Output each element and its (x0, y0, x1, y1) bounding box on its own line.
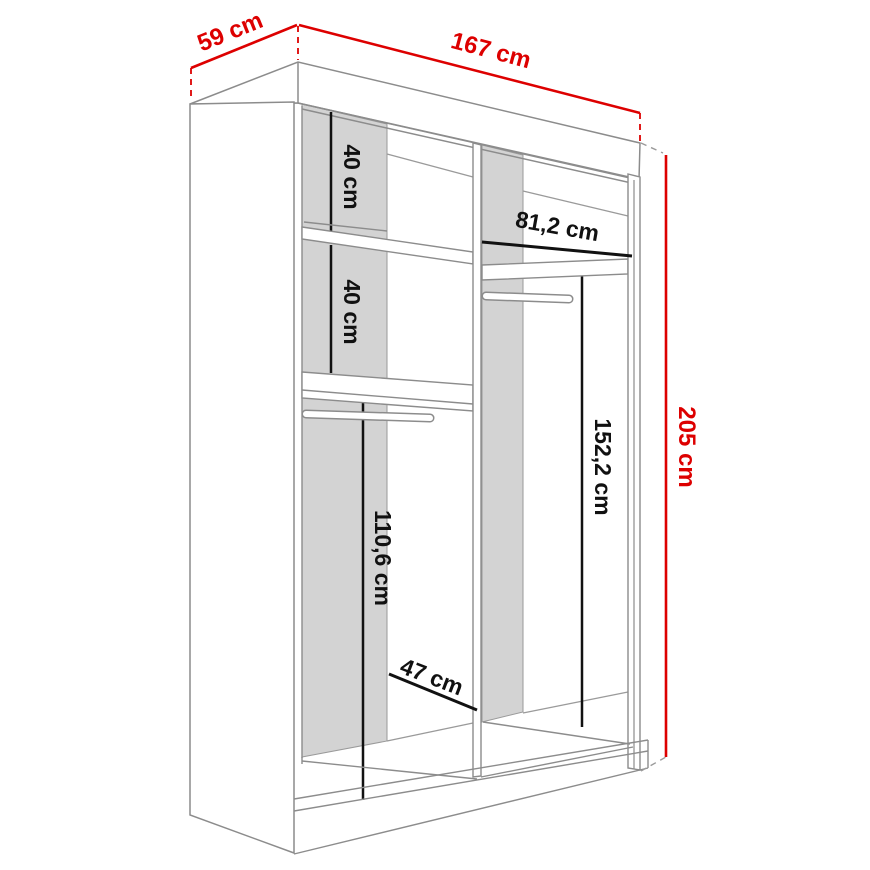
middle-divider (473, 143, 481, 777)
wardrobe-dimension-diagram: 59 cm 167 cm 205 cm 40 cm 40 cm 81,2 cm … (0, 0, 870, 870)
floor-back-line-left (387, 723, 473, 741)
wardrobe-drawing: 59 cm 167 cm 205 cm 40 cm 40 cm 81,2 cm … (0, 0, 870, 870)
right-hanging-height-label: 152,2 cm (590, 418, 616, 515)
left-hanging-rod (306, 414, 430, 418)
right-shelf-width-label: 81,2 cm (514, 206, 602, 246)
floor-back-line-right (523, 692, 628, 713)
left-bottom-width-label: 47 cm (397, 653, 467, 701)
floor-back-edge-right (483, 722, 630, 744)
floor-front-edge-left (302, 761, 477, 779)
extension-line-height-top (641, 143, 663, 153)
right-hanging-rod (486, 296, 569, 299)
height-dimension-label: 205 cm (673, 406, 700, 487)
middle-shelf-spacing-label: 40 cm (339, 279, 365, 344)
ceiling-back-line-left (387, 154, 473, 177)
left-hanging-height-label: 110,6 cm (370, 510, 396, 606)
left-side-panel (190, 102, 294, 853)
floor-front-edge-right (481, 747, 633, 777)
depth-dimension-label: 59 cm (194, 7, 267, 58)
upper-shelf-spacing-label: 40 cm (339, 144, 365, 209)
extension-line-height-bottom (641, 757, 666, 771)
